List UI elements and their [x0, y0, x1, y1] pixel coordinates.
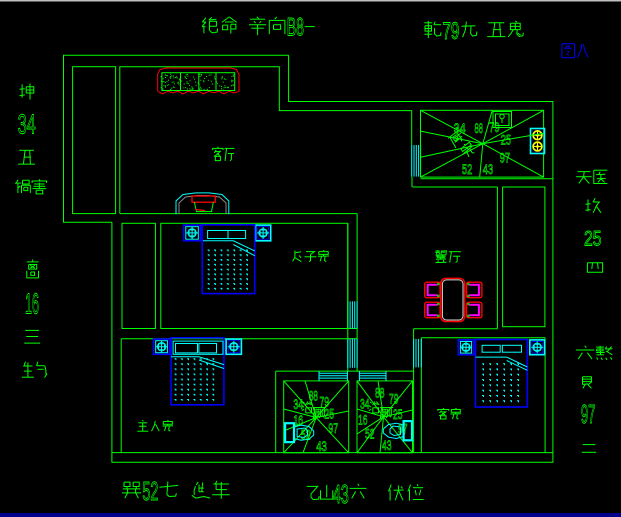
svg-text:34: 34	[360, 397, 370, 412]
svg-text:25: 25	[324, 407, 334, 422]
svg-text:43: 43	[382, 438, 392, 453]
svg-text:52: 52	[142, 476, 158, 506]
svg-text:88: 88	[309, 389, 318, 404]
svg-text:34: 34	[293, 397, 303, 412]
svg-text:97: 97	[581, 399, 596, 429]
svg-text:88: 88	[475, 121, 484, 137]
svg-text:34: 34	[18, 109, 36, 140]
svg-text:43: 43	[333, 479, 349, 509]
svg-text:97: 97	[328, 421, 338, 436]
svg-text:B8: B8	[287, 15, 304, 42]
svg-text:79: 79	[389, 392, 399, 407]
svg-text:97: 97	[500, 151, 511, 167]
svg-text:43: 43	[316, 439, 327, 454]
svg-text:79: 79	[443, 18, 460, 45]
svg-text:79: 79	[489, 120, 500, 136]
svg-text:16: 16	[25, 289, 39, 321]
svg-text:88: 88	[375, 386, 385, 401]
svg-text:25: 25	[501, 133, 512, 149]
svg-text:52: 52	[365, 427, 375, 442]
svg-text:25: 25	[584, 228, 602, 251]
svg-text:16: 16	[358, 413, 368, 428]
svg-text:52: 52	[462, 162, 473, 178]
svg-text:25: 25	[393, 407, 403, 422]
svg-text:43: 43	[483, 162, 494, 178]
